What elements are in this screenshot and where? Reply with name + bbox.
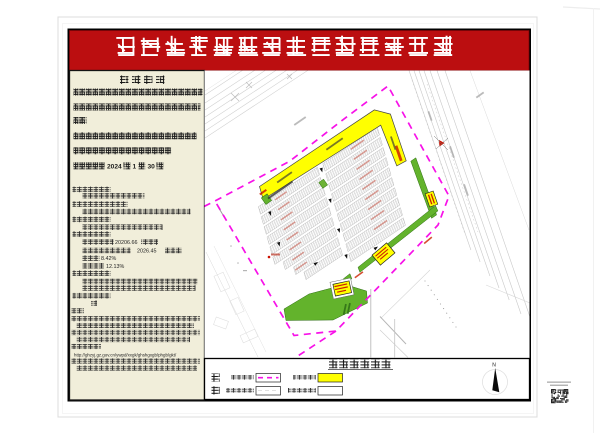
svg-text:N: N (492, 363, 496, 369)
svg-text:http://ghzyj.gz.gov.cn/ywpd/xx: http://ghzyj.gz.gov.cn/ywpd/xxgk/ghshgxg… (74, 352, 177, 357)
svg-text:2024: 2024 (107, 163, 122, 170)
svg-text:20206.66: 20206.66 (115, 240, 137, 246)
svg-text:1: 1 (133, 163, 137, 170)
svg-text:2026.45: 2026.45 (137, 249, 157, 255)
svg-text:8.42%: 8.42% (101, 256, 116, 262)
svg-text:12.13%: 12.13% (106, 264, 124, 270)
svg-text:30: 30 (148, 163, 156, 170)
